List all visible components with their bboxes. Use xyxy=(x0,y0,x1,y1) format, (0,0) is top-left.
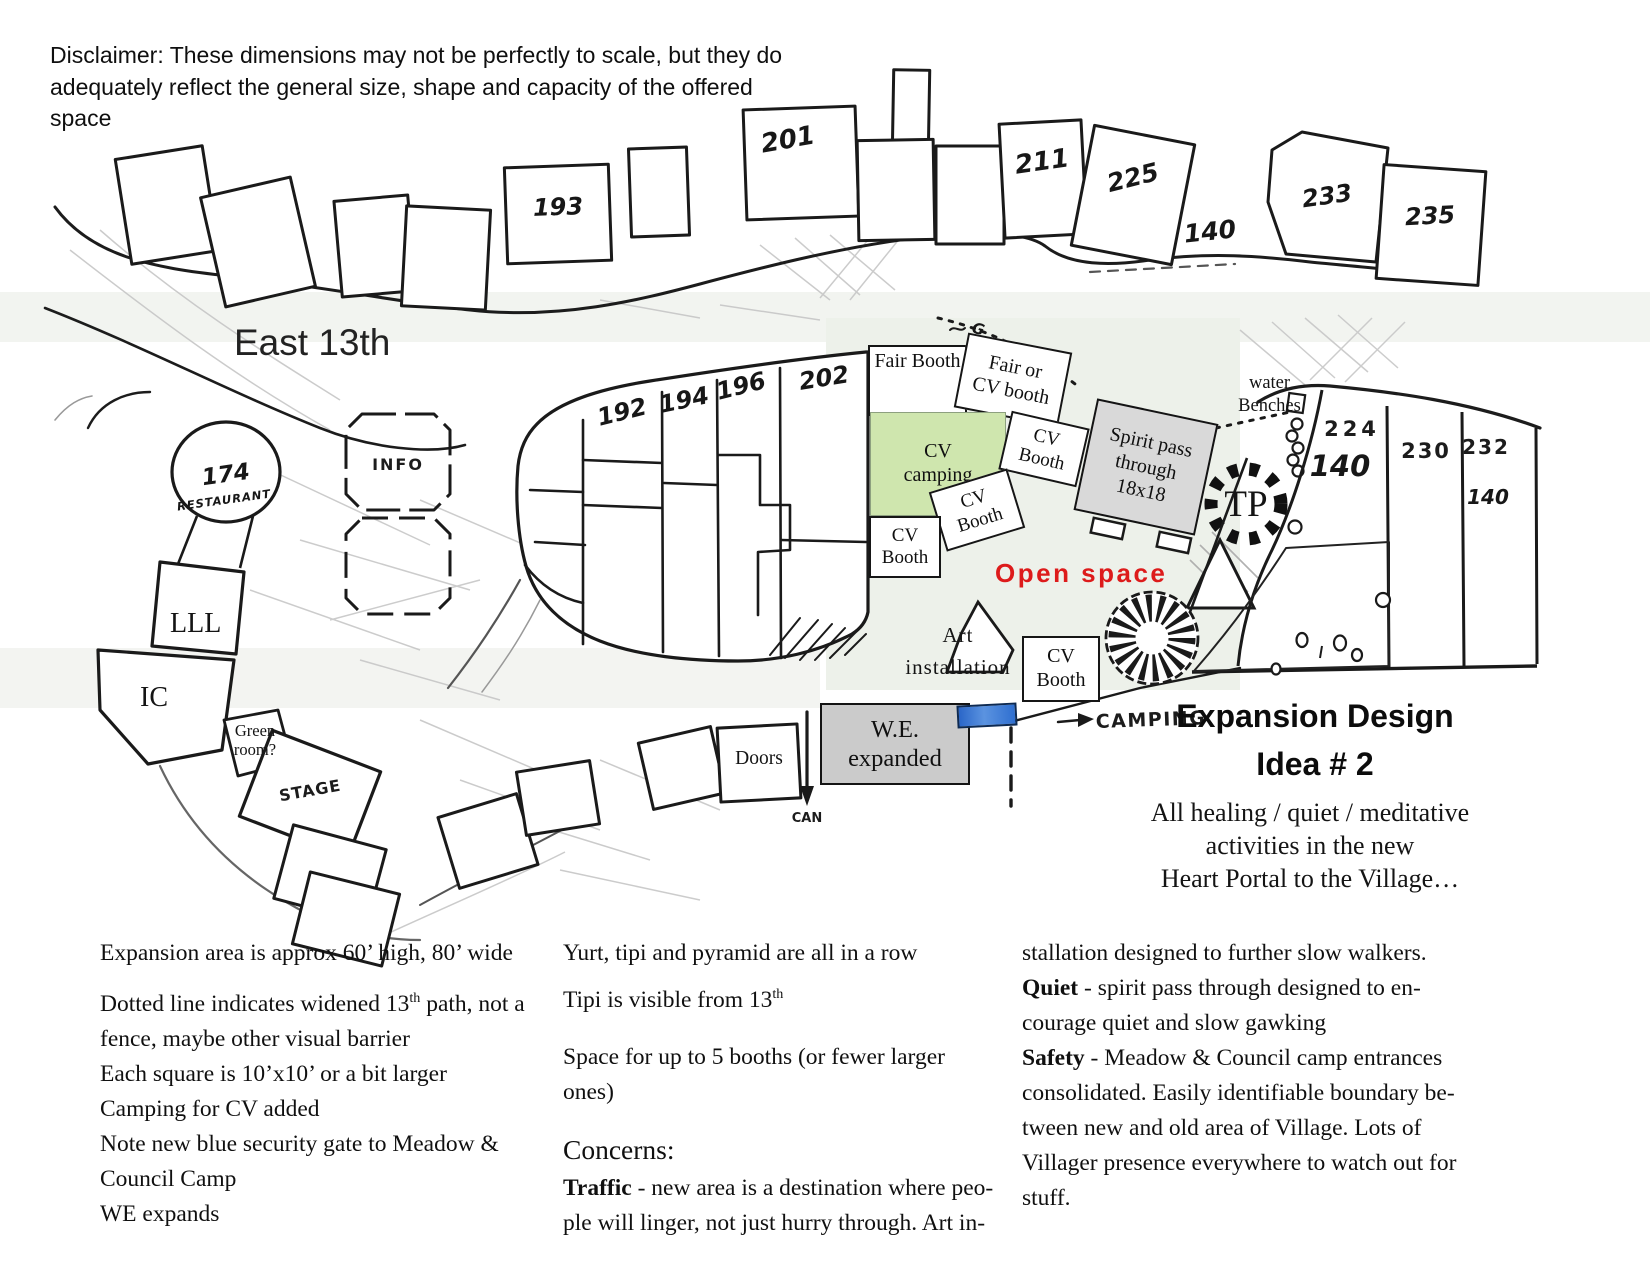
green-room-label: Green room? xyxy=(222,722,288,760)
lot-232-capacity: 140 xyxy=(1467,485,1509,509)
note-text: Tipi is visible from 13 xyxy=(563,987,772,1013)
expansion-map-page: 193 201 211 225 140 233 235 192 194 196 … xyxy=(0,0,1650,1275)
superscript-th: th xyxy=(772,986,783,1002)
superscript-th: th xyxy=(409,990,420,1006)
ic-label: IC xyxy=(140,682,168,714)
note-yurt-row: Yurt, tipi and pyramid are all in a row xyxy=(563,936,1018,971)
open-space-label: Open space xyxy=(995,558,1195,589)
traffic-term: Traffic xyxy=(563,1175,632,1201)
tp-label: TP xyxy=(1220,483,1272,526)
note-text: stallation designed to further slow walk… xyxy=(1022,940,1427,966)
octagon-2 xyxy=(346,518,450,614)
street-label: East 13th xyxy=(234,322,390,364)
art-installation-label: Art installation xyxy=(888,620,1028,683)
note-text: - spirit pass through designed to en- co… xyxy=(1022,975,1421,1036)
disclaimer-text: Disclaimer: These dimensions may not be … xyxy=(50,40,810,135)
concerns-heading: Concerns: xyxy=(563,1132,1018,1167)
cv-booth-4: CV Booth xyxy=(1022,636,1100,702)
lot-211-box xyxy=(999,120,1087,238)
safety-term: Safety xyxy=(1022,1045,1085,1071)
blue-security-gate xyxy=(956,702,1017,728)
notes-column-right: stallation designed to further slow walk… xyxy=(1022,936,1487,1216)
water-benches-label: water Benches xyxy=(1212,372,1327,417)
subtitle-text: All healing / quiet / meditative activit… xyxy=(1122,797,1498,895)
can-label: CAN xyxy=(792,811,822,826)
info-label: INFO xyxy=(372,455,424,474)
doors-label: Doors xyxy=(724,748,794,770)
note-security-gate: Note new blue security gate to Meadow & … xyxy=(100,1127,552,1197)
cv-booth-3: CV Booth xyxy=(869,516,941,578)
note-booth-space: Space for up to 5 booths (or fewer large… xyxy=(563,1040,1018,1110)
lot-193-label: 193 xyxy=(532,192,583,222)
lot-224-label: 224 xyxy=(1324,417,1380,441)
lot-140-top-label: 140 xyxy=(1182,214,1237,248)
notes-column-middle: Yurt, tipi and pyramid are all in a row … xyxy=(563,936,1018,1241)
lot-224-capacity: 140 xyxy=(1310,449,1371,483)
quiet-term: Quiet xyxy=(1022,975,1078,1001)
lot-235-label: 235 xyxy=(1404,201,1456,232)
page-title: Expansion Design Idea # 2 xyxy=(1150,692,1480,788)
note-expansion-area: Expansion area is approx 60’ high, 80’ w… xyxy=(100,936,552,971)
lll-label: LLL xyxy=(170,608,221,640)
lot-232-label: 232 xyxy=(1462,435,1510,459)
notes-column-left: Expansion area is approx 60’ high, 80’ w… xyxy=(100,936,552,1232)
lot-230-label: 230 xyxy=(1401,439,1451,463)
note-we-expands: WE expands xyxy=(100,1197,552,1232)
we-expanded-area: W.E. expanded xyxy=(820,703,970,785)
note-traffic: Traffic - new area is a destination wher… xyxy=(563,1171,1018,1241)
lot-225-box xyxy=(1071,125,1194,264)
note-square-size: Each square is 10’x10’ or a bit larger xyxy=(100,1057,552,1092)
note-concerns-continued: stallation designed to further slow walk… xyxy=(1022,936,1487,1216)
note-text: - Meadow & Council camp entrances consol… xyxy=(1022,1045,1456,1211)
yurt-center xyxy=(1140,626,1165,651)
note-camping-added: Camping for CV added xyxy=(100,1092,552,1127)
camping-arrowhead xyxy=(1078,713,1094,727)
note-dotted-line: Dotted line indicates widened 13th path,… xyxy=(100,981,552,1057)
note-tipi-visible: Tipi is visible from 13th xyxy=(563,977,1018,1018)
note-text: Dotted line indicates widened 13 xyxy=(100,991,409,1017)
fair-booth: Fair Booth xyxy=(868,345,967,416)
